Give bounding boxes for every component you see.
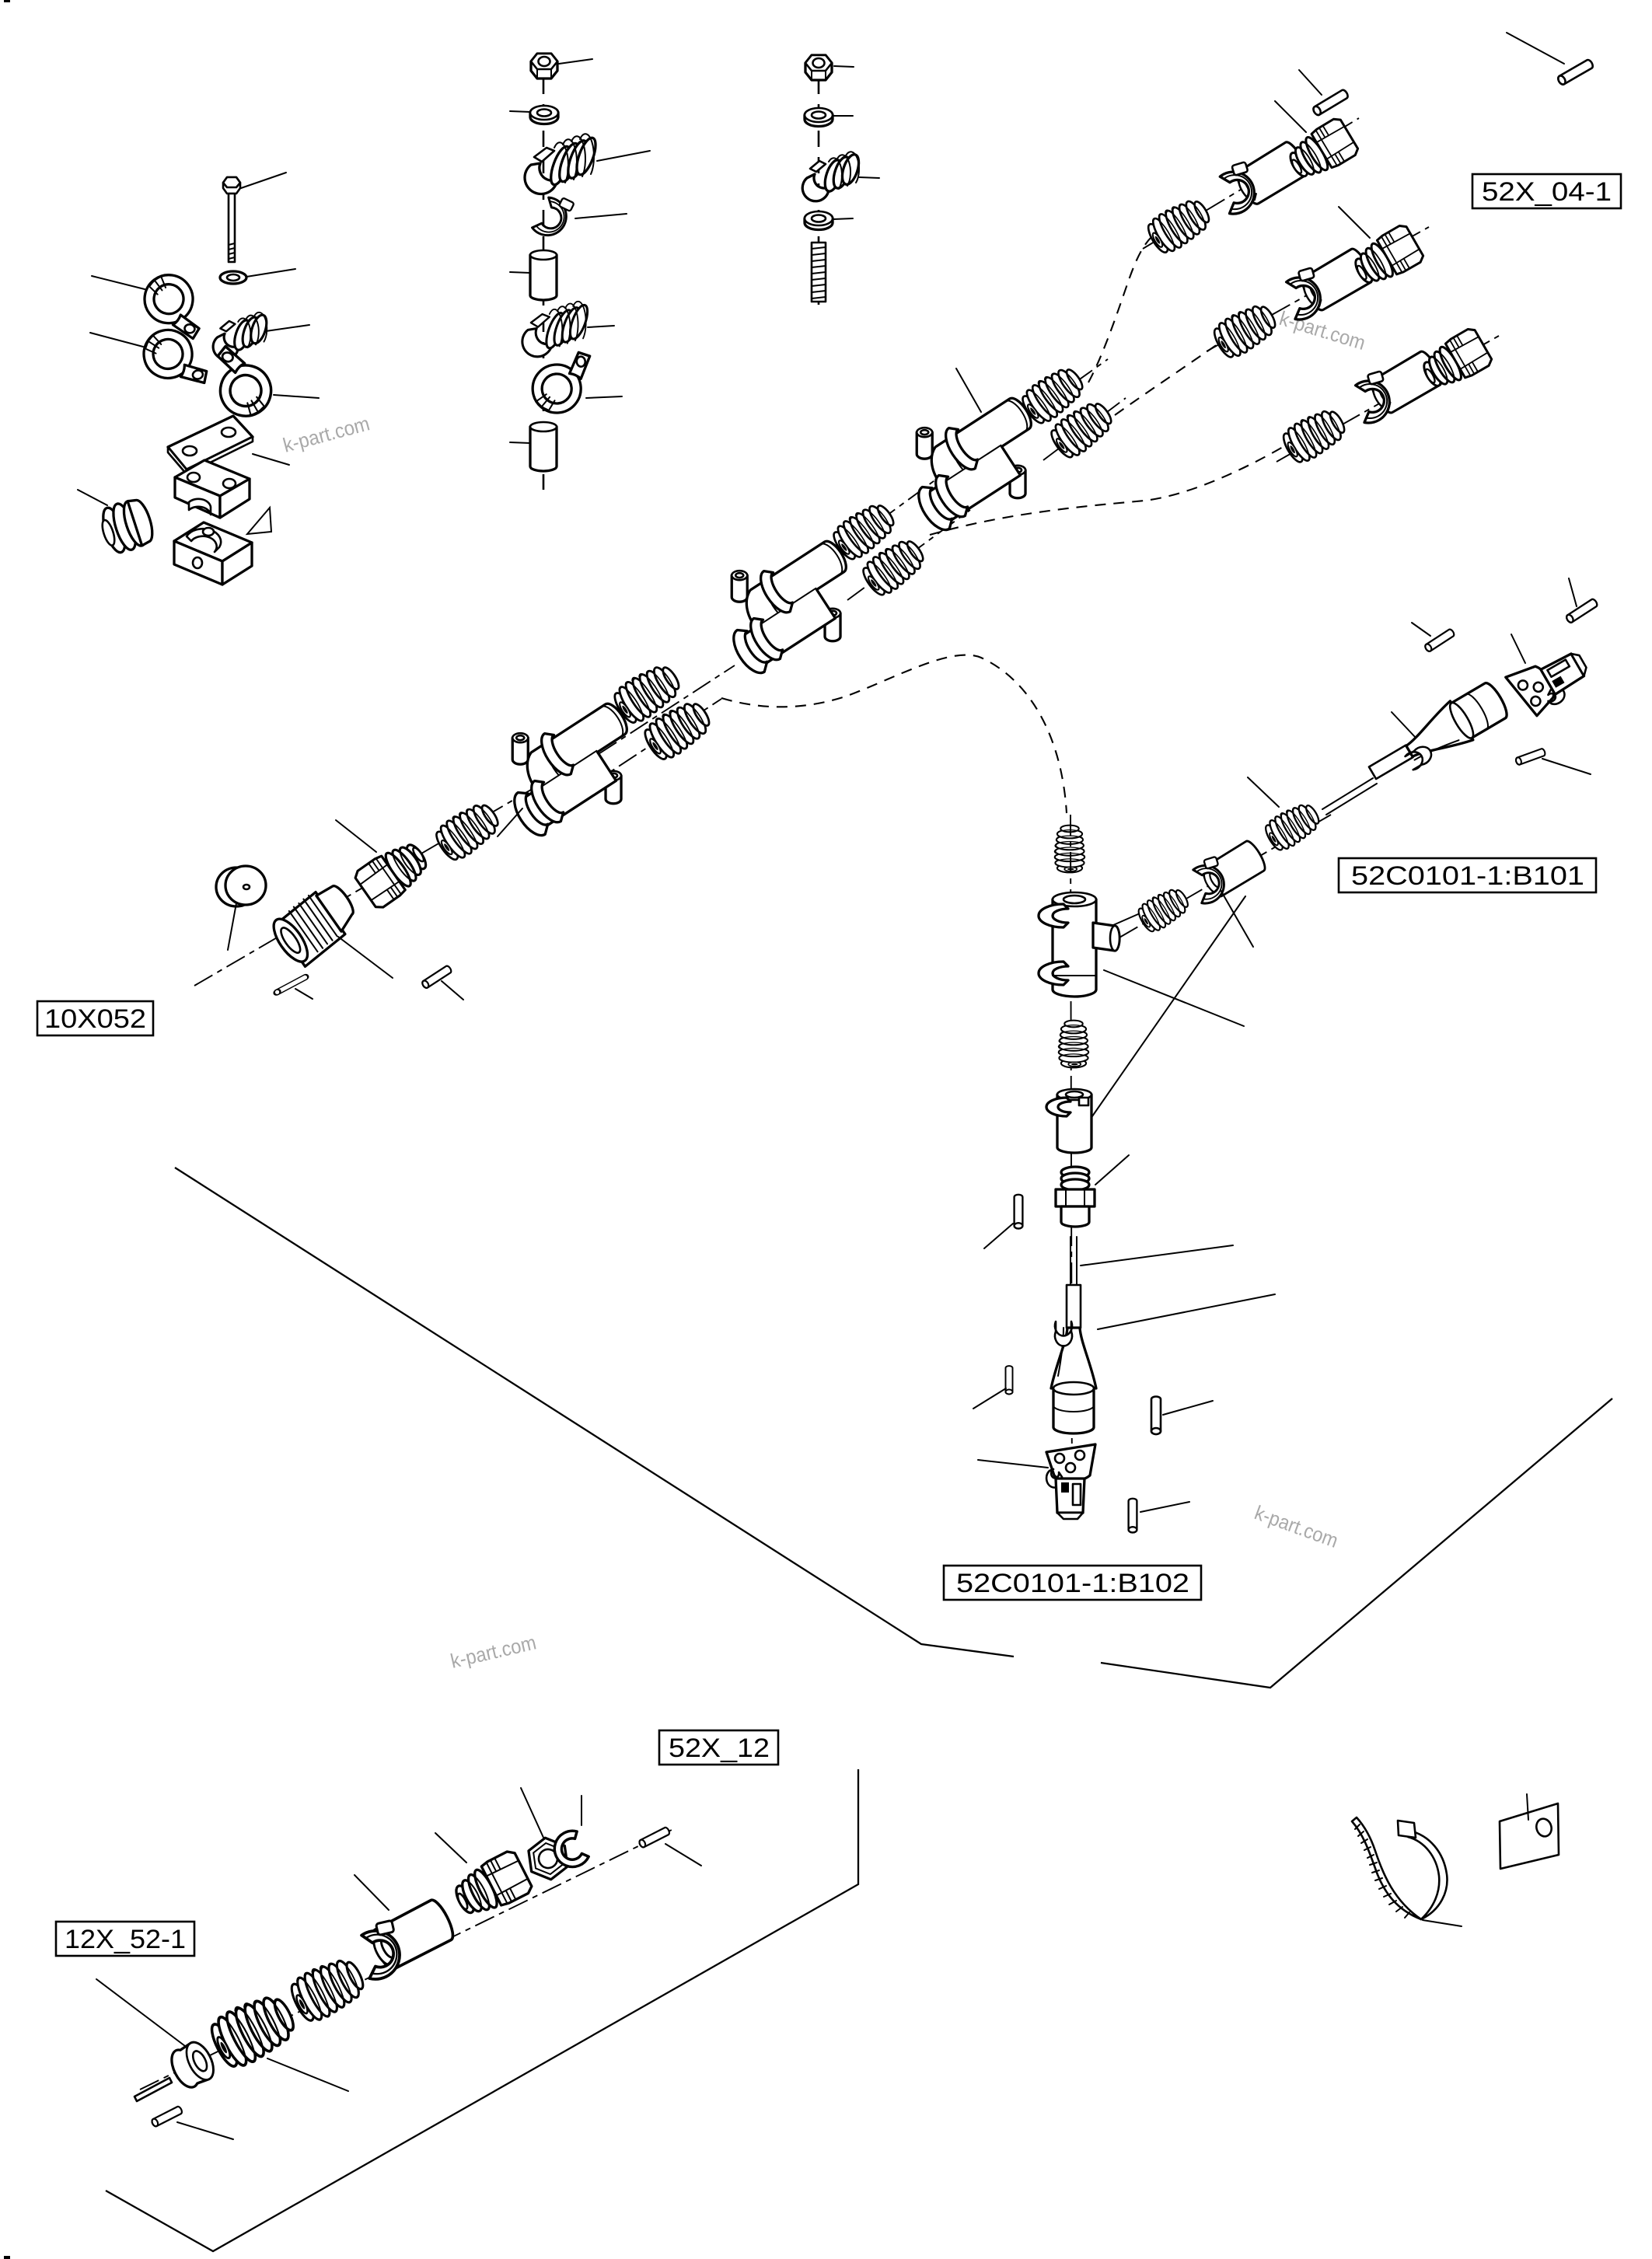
svg-text:52X_04-1: 52X_04-1 <box>1482 177 1612 207</box>
svg-text:52C0101-1:B101: 52C0101-1:B101 <box>1351 861 1584 891</box>
svg-text:12X_52-1: 12X_52-1 <box>65 1925 186 1954</box>
svg-text:10X052: 10X052 <box>44 1004 146 1034</box>
svg-text:52X_12: 52X_12 <box>669 1734 770 1763</box>
svg-text:52C0101-1:B102: 52C0101-1:B102 <box>956 1569 1189 1598</box>
